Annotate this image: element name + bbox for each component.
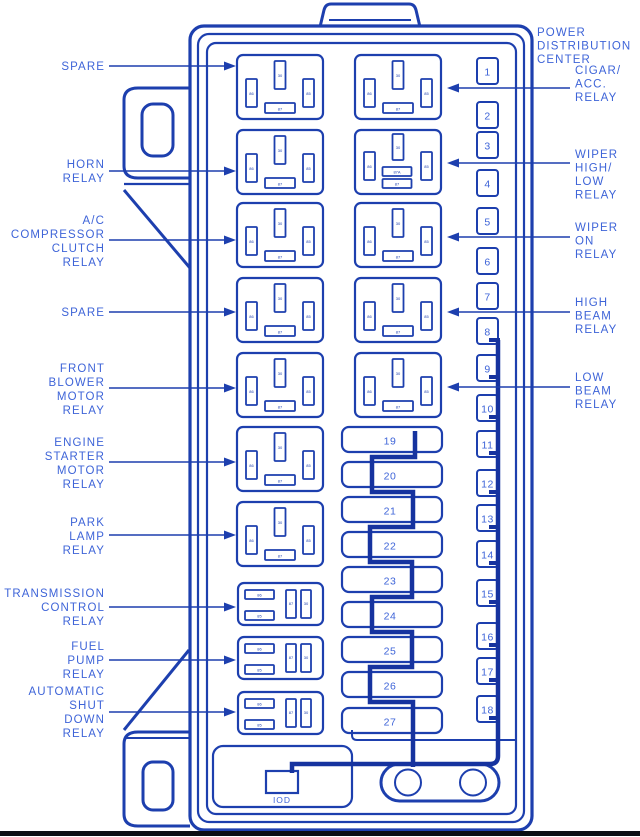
pin-label: 87 — [278, 405, 283, 410]
pin-label: 87 — [278, 479, 283, 484]
arrow-head-icon — [447, 233, 459, 242]
fuse-number: 17 — [481, 667, 494, 679]
fuse-box-diagram: IOD 308685873086858730868587308685873086… — [0, 0, 640, 837]
label-line: MOTOR — [57, 465, 105, 477]
right-label-1: CIGAR/ACC.RELAY — [447, 65, 621, 104]
left-labels: SPAREHORNRELAYA/CCOMPRESSORCLUTCHRELAYSP… — [4, 61, 236, 740]
relay-high-beam: 30868587 — [355, 278, 441, 342]
label-line: CLUTCH — [52, 243, 105, 255]
pin-label: 87 — [289, 710, 294, 715]
arrow-head-icon — [224, 308, 236, 317]
pin-label: 30 — [396, 221, 401, 226]
pin-label: 86 — [257, 593, 262, 598]
label-line: RELAY — [63, 405, 105, 417]
fuse-number: 25 — [384, 646, 397, 658]
label-line: AUTOMATIC — [28, 686, 105, 698]
relay-cigar-acc: 30868587 — [355, 55, 441, 119]
label-line: CIGAR/ — [575, 65, 621, 77]
pin-label: 30 — [396, 73, 401, 78]
left-label-1: HORNRELAY — [63, 159, 236, 185]
pin-label: 30 — [278, 73, 283, 78]
pin-label: 30 — [278, 221, 283, 226]
iod-label: IOD — [273, 795, 291, 805]
fuse-number: 23 — [384, 576, 397, 588]
lower-mount-bracket — [124, 650, 190, 826]
fuse-number: 14 — [481, 550, 494, 562]
arrow-head-icon — [224, 384, 236, 393]
fuse-slot-27: 27 — [342, 708, 442, 733]
pin-label: 85 — [424, 164, 429, 169]
pin-label: 87 — [289, 655, 294, 660]
left-label-6: PARKLAMPRELAY — [63, 517, 236, 557]
label-line: PUMP — [67, 655, 105, 667]
fuse-number: 7 — [484, 292, 490, 304]
pin-label: 87 — [396, 107, 401, 112]
pin-label: 85 — [306, 239, 311, 244]
left-label-0: SPARE — [61, 61, 236, 73]
label-line: BLOWER — [49, 377, 105, 389]
lower-bracket-hole — [143, 762, 173, 810]
pin-label: 87 — [278, 182, 283, 187]
relay-park-lamp: 30868587 — [237, 502, 323, 566]
pin-label: 86 — [249, 463, 254, 468]
arrow-head-icon — [224, 708, 236, 717]
relay-transmission-control: 86858730 — [238, 583, 323, 625]
arrow-head-icon — [447, 159, 459, 168]
pin-label: 86 — [249, 166, 254, 171]
fuse-number: 9 — [484, 364, 490, 376]
upper-bracket-hole — [142, 104, 173, 156]
pin-label: 87 — [278, 330, 283, 335]
arrow-head-icon — [224, 603, 236, 612]
fuse-slot-2: 2 — [477, 102, 498, 128]
pin-label: 87 — [278, 554, 283, 559]
fuse-number: 21 — [384, 506, 397, 518]
iod-connector: IOD — [266, 771, 298, 805]
connector-terminal-left — [395, 770, 421, 796]
label-line: SPARE — [61, 61, 105, 73]
fuse-slot-25: 25 — [342, 637, 442, 662]
pin-label: 87 — [289, 601, 294, 606]
fuse-number: 10 — [481, 404, 494, 416]
pin-label: 86 — [249, 389, 254, 394]
pin-label: 86 — [367, 314, 372, 319]
pin-label: 30 — [278, 520, 283, 525]
label-line: COMPRESSOR — [11, 229, 105, 241]
left-label-8: FUELPUMPRELAY — [63, 641, 236, 681]
pin-label: 85 — [306, 91, 311, 96]
pin-label: 86 — [249, 314, 254, 319]
label-line: RELAY — [63, 257, 105, 269]
pin-label: 85 — [424, 239, 429, 244]
relay-low-beam: 30868587 — [355, 353, 441, 417]
arrow-head-icon — [224, 167, 236, 176]
label-line: RELAY — [575, 92, 617, 104]
label-line: FRONT — [60, 363, 105, 375]
pin-label: 85 — [306, 538, 311, 543]
pin-label: 86 — [367, 91, 372, 96]
fuse-number: 3 — [484, 141, 490, 153]
label-line: LAMP — [69, 531, 105, 543]
right-labels: POWERDISTRIBUTIONCENTERCIGAR/ACC.RELAYWI… — [447, 27, 631, 411]
fuse-slot-21: 21 — [342, 497, 442, 522]
label-line: HIGH — [575, 297, 608, 309]
relay-front-blower-motor: 30868587 — [237, 353, 323, 417]
label-line: ON — [575, 236, 594, 248]
pin-label: 85 — [257, 614, 262, 619]
connector-terminal-right — [460, 770, 486, 796]
label-line: BEAM — [575, 386, 612, 398]
label-line: RELAY — [63, 545, 105, 557]
fuse-number: 1 — [484, 67, 490, 79]
pin-label: 86 — [257, 702, 262, 707]
label-line: RELAY — [63, 669, 105, 681]
arrow-head-icon — [447, 383, 459, 392]
pin-label: 86 — [249, 239, 254, 244]
fuse-number: 6 — [484, 257, 490, 269]
label-line: MOTOR — [57, 391, 105, 403]
label-line: LOW — [575, 176, 605, 188]
pin-label: 85 — [257, 668, 262, 673]
pin-label: 30 — [396, 145, 401, 150]
fuse-number: 18 — [481, 705, 494, 717]
fuse-slot-6: 6 — [477, 248, 498, 274]
pin-label: 85 — [424, 314, 429, 319]
label-line: RELAY — [575, 324, 617, 336]
fuse-number: 13 — [481, 514, 494, 526]
pin-label: 86 — [249, 91, 254, 96]
pin-label: 30 — [396, 296, 401, 301]
pin-label: 86 — [367, 239, 372, 244]
relay-spare-2: 30868587 — [237, 278, 323, 342]
label-line: HORN — [67, 159, 105, 171]
fuse-slot-22: 22 — [342, 532, 442, 557]
fuse-slot-26: 26 — [342, 672, 442, 697]
fuse-number: 8 — [484, 327, 490, 339]
label-line: BEAM — [575, 311, 612, 323]
relay-ac-compressor-clutch: 30868587 — [237, 203, 323, 267]
label-line: TRANSMISSION — [4, 588, 105, 600]
pin-label: 85 — [424, 91, 429, 96]
pin-label: 87 — [396, 330, 401, 335]
pin-label: 87 — [278, 255, 283, 260]
fuse-slot-3: 3 — [477, 132, 498, 158]
label-line: STARTER — [45, 451, 105, 463]
fuse-number: 4 — [484, 179, 490, 191]
fuse-slot-1: 1 — [477, 58, 498, 84]
pin-label: 30 — [304, 710, 309, 715]
fuse-slot-19: 19 — [342, 427, 442, 452]
pin-label: 30 — [278, 371, 283, 376]
label-line: WIPER — [575, 222, 618, 234]
label-line: RELAY — [63, 479, 105, 491]
top-tab — [320, 4, 420, 27]
left-label-3: SPARE — [61, 307, 236, 319]
label-line: ENGINE — [54, 437, 105, 449]
label-line: RELAY — [63, 173, 105, 185]
pin-label: 86 — [249, 538, 254, 543]
label-line: SPARE — [61, 307, 105, 319]
arrow-head-icon — [224, 62, 236, 71]
pin-label: 30 — [278, 148, 283, 153]
label-line: LOW — [575, 372, 605, 384]
pin-label: 86 — [367, 164, 372, 169]
relay-wiper-high-low: 30868587A87 — [355, 130, 441, 194]
relay-wiper-on: 30868587 — [355, 203, 441, 267]
label-line: RELAY — [63, 728, 105, 740]
arrow-head-icon — [224, 236, 236, 245]
fuse-number: 12 — [481, 479, 494, 491]
label-line: WIPER — [575, 149, 618, 161]
left-label-7: TRANSMISSIONCONTROLRELAY — [4, 588, 236, 628]
fuse-number: 2 — [484, 111, 490, 123]
power-distribution-center-diagram: IOD 308685873086858730868587308685873086… — [0, 0, 640, 837]
fuse-slot-24: 24 — [342, 602, 442, 627]
internal-shelf-line — [352, 730, 516, 740]
label-line: POWER — [537, 27, 586, 39]
relay-spare-1: 30868587 — [237, 55, 323, 119]
pin-label: 85 — [306, 314, 311, 319]
image-baseline — [0, 831, 640, 836]
pin-label: 86 — [257, 647, 262, 652]
diagram-title: POWERDISTRIBUTIONCENTER — [537, 27, 631, 66]
label-line: SHUT — [69, 700, 105, 712]
fuse-number: 19 — [384, 436, 397, 448]
label-line: RELAY — [575, 399, 617, 411]
fuse-number: 16 — [481, 632, 494, 644]
pin-label: 85 — [257, 723, 262, 728]
fuse-column-right: 123456789101112131415161718 — [477, 58, 498, 722]
fuse-column-middle: 192021222324252627 — [342, 427, 442, 733]
pin-label: 85 — [306, 389, 311, 394]
pin-label: 30 — [278, 445, 283, 450]
label-line: RELAY — [575, 249, 617, 261]
fuse-slot-4: 4 — [477, 170, 498, 196]
label-line: A/C — [83, 215, 105, 227]
relay-engine-starter-motor: 30868587 — [237, 427, 323, 491]
fuse-number: 5 — [484, 217, 490, 229]
fuse-slot-5: 5 — [477, 208, 498, 234]
pin-label: 86 — [367, 389, 372, 394]
fuse-number: 24 — [384, 611, 397, 623]
fuse-number: 27 — [384, 717, 397, 729]
pin-label: 85 — [306, 166, 311, 171]
fuse-slot-23: 23 — [342, 567, 442, 592]
pin-label: 87 — [396, 405, 401, 410]
label-line: HIGH/ — [575, 163, 612, 175]
arrow-head-icon — [224, 531, 236, 540]
pin-label: 85 — [306, 463, 311, 468]
arrow-head-icon — [447, 84, 459, 93]
label-line: RELAY — [63, 616, 105, 628]
fuse-number: 11 — [482, 440, 494, 452]
fuse-number: 15 — [481, 589, 494, 601]
pin-label: 30 — [396, 371, 401, 376]
fuse-slot-20: 20 — [342, 462, 442, 487]
pin-label: 85 — [424, 389, 429, 394]
bottom-connector — [381, 764, 499, 801]
label-line: PARK — [70, 517, 105, 529]
arrow-head-icon — [447, 308, 459, 317]
label-line: DOWN — [64, 714, 105, 726]
pin-label: 87 — [395, 182, 400, 187]
pin-label: 87 — [396, 255, 401, 260]
relay-horn: 30868587 — [237, 130, 323, 194]
pin-label: 87 — [278, 107, 283, 112]
label-line: RELAY — [575, 190, 617, 202]
fuse-number: 26 — [384, 681, 397, 693]
fuse-number: 20 — [384, 471, 397, 483]
left-label-2: A/CCOMPRESSORCLUTCHRELAY — [11, 215, 236, 269]
pin-label: 30 — [304, 601, 309, 606]
fuse-slot-7: 7 — [477, 283, 498, 309]
arrow-head-icon — [224, 656, 236, 665]
arrow-head-icon — [224, 458, 236, 467]
fuse-number: 22 — [384, 541, 397, 553]
upper-mount-bracket — [124, 88, 190, 268]
relay-fuel-pump: 86858730 — [238, 637, 323, 679]
pin-label: 30 — [304, 655, 309, 660]
label-line: CONTROL — [41, 602, 105, 614]
label-line: DISTRIBUTION — [537, 41, 631, 53]
pin-label: 30 — [278, 296, 283, 301]
label-line: ACC. — [575, 79, 607, 91]
relay-automatic-shut-down: 86858730 — [238, 692, 323, 734]
label-line: FUEL — [71, 641, 105, 653]
pin-label: 87A — [393, 170, 400, 175]
